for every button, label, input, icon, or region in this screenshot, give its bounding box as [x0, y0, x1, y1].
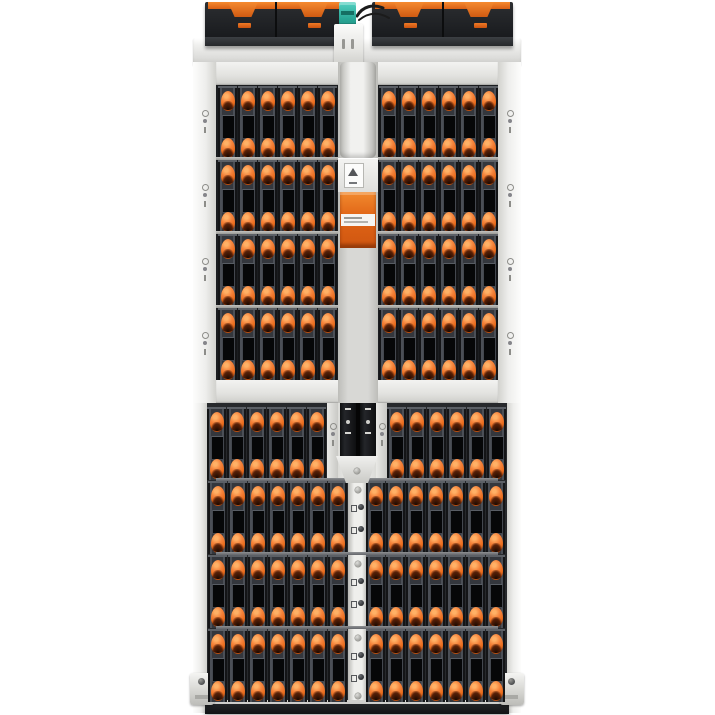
drive-tray [218, 86, 237, 159]
drive-tray [479, 308, 498, 381]
drive-tray [247, 407, 266, 480]
drive-window [282, 189, 295, 213]
drive-window [470, 584, 483, 608]
drive-latch-icon [429, 486, 443, 506]
drive-latch-icon [442, 165, 456, 185]
drive-window [292, 658, 305, 682]
drive-window [430, 658, 443, 682]
drive-window [483, 115, 496, 139]
drive-tray [287, 407, 306, 480]
drive-latch-icon [261, 165, 275, 185]
drive-latch-icon [231, 607, 245, 627]
drive-latch-icon [261, 239, 275, 259]
drive-window [403, 115, 416, 139]
drive-tray [328, 555, 347, 628]
drive-latch-icon [390, 459, 404, 479]
drive-latch-icon [301, 286, 315, 306]
drive-latch-icon [221, 360, 235, 380]
drive-latch-icon [449, 560, 463, 580]
drive-latch-icon [251, 634, 265, 654]
drive-window [262, 337, 275, 361]
drive-latch-icon [301, 360, 315, 380]
drive-window [312, 584, 325, 608]
drive-latch-icon [211, 533, 225, 553]
bracket-slot [351, 39, 354, 49]
drive-tray [386, 555, 405, 628]
module-label [341, 214, 375, 226]
drive-latch-icon [301, 239, 315, 259]
drive-tray [278, 86, 297, 159]
drive-tray [227, 407, 246, 480]
drive-row-indicator-icon [328, 421, 337, 447]
fan-handle [404, 23, 417, 28]
drive-window [431, 436, 444, 460]
center-mini-rail [327, 403, 338, 480]
drive-window [463, 115, 476, 139]
fan-latch-notch-icon [394, 2, 424, 17]
drive-window [490, 510, 503, 534]
indicator-box [351, 653, 357, 660]
drive-tray [248, 629, 267, 702]
drive-window [332, 584, 345, 608]
indicator-knob [358, 504, 364, 510]
drive-latch-icon [469, 634, 483, 654]
drive-window [391, 436, 404, 460]
drive-latch-icon [321, 212, 335, 232]
drive-latch-icon [221, 313, 235, 333]
drive-row-indicator-icon [505, 182, 514, 208]
drive-latch-icon [291, 634, 305, 654]
drive-window [463, 263, 476, 287]
drive-window [471, 436, 484, 460]
indicator-dot [203, 119, 207, 123]
drive-latch-icon [301, 165, 315, 185]
drive-latch-icon [409, 560, 423, 580]
drive-window [463, 337, 476, 361]
drive-tray [486, 555, 505, 628]
drive-window [390, 510, 403, 534]
storage-enclosure [193, 2, 521, 713]
drive-latch-icon [449, 533, 463, 553]
drive-latch-icon [402, 212, 416, 232]
drive-latch-icon [482, 360, 496, 380]
indicator-box [351, 675, 357, 682]
drive-row [208, 629, 348, 700]
drive-tray [318, 86, 337, 159]
drive-window [383, 337, 396, 361]
drive-latch-icon [331, 560, 345, 580]
drive-tray [386, 629, 405, 702]
drive-latch-icon [251, 681, 265, 701]
drive-window [242, 263, 255, 287]
drive-latch-icon [382, 91, 396, 111]
fan-latch-notch-icon [228, 2, 258, 17]
drive-latch-icon [231, 533, 245, 553]
drive-tray [467, 407, 486, 480]
center-label-module [338, 158, 378, 192]
screw-head-icon [355, 693, 361, 699]
drive-tray [366, 629, 385, 702]
drive-latch-icon [310, 412, 324, 432]
center-bracket [334, 24, 363, 66]
drive-window [423, 337, 436, 361]
drive-window [222, 337, 235, 361]
drive-tray [479, 86, 498, 159]
drive-latch-icon [482, 138, 496, 158]
indicator-dot [508, 119, 512, 123]
drive-tray [228, 629, 247, 702]
drive-latch-icon [271, 607, 285, 627]
drive-latch-icon [250, 459, 264, 479]
drive-latch-icon [402, 239, 416, 259]
drive-latch-icon [382, 165, 396, 185]
indicator-bar [204, 201, 206, 207]
drive-latch-icon [241, 313, 255, 333]
drive-window [403, 263, 416, 287]
drive-tray [288, 555, 307, 628]
indicator-ring [330, 423, 337, 430]
drive-latch-icon [442, 313, 456, 333]
drive-latch-icon [230, 412, 244, 432]
drive-window [212, 584, 225, 608]
drive-latch-icon [489, 486, 503, 506]
drive-latch-icon [271, 560, 285, 580]
drive-latch-icon [389, 486, 403, 506]
port-indicator-icon [351, 503, 365, 513]
indicator-dot [331, 432, 335, 436]
drive-window [411, 436, 424, 460]
drive-latch-icon [382, 286, 396, 306]
fan-module-base [372, 37, 513, 46]
drive-window [403, 189, 416, 213]
drive-latch-icon [241, 138, 255, 158]
drive-latch-icon [462, 91, 476, 111]
drive-tray [258, 308, 277, 381]
drive-window [302, 115, 315, 139]
drive-latch-icon [301, 212, 315, 232]
indicator-ring [202, 332, 209, 339]
drive-latch-icon [429, 634, 443, 654]
drive-tray [208, 481, 227, 554]
drive-latch-icon [291, 681, 305, 701]
drive-tray [308, 629, 327, 702]
drive-latch-icon [470, 412, 484, 432]
drive-window [232, 584, 245, 608]
drive-window [450, 510, 463, 534]
drive-latch-icon [450, 412, 464, 432]
drive-row [379, 234, 499, 305]
drive-latch-icon [489, 681, 503, 701]
drive-tray [379, 234, 398, 307]
drive-latch-icon [462, 138, 476, 158]
drive-latch-icon [369, 560, 383, 580]
drive-latch-icon [422, 360, 436, 380]
fan-latch-notch-icon [464, 2, 494, 17]
drive-tray [298, 234, 317, 307]
drive-tray [238, 234, 257, 307]
drive-tray [248, 555, 267, 628]
drive-window [322, 115, 335, 139]
drive-latch-icon [489, 560, 503, 580]
drive-latch-icon [390, 412, 404, 432]
drive-window [242, 337, 255, 361]
drive-latch-icon [482, 313, 496, 333]
drive-window [251, 436, 264, 460]
drive-window [292, 510, 305, 534]
drive-latch-icon [462, 165, 476, 185]
drive-latch-icon [409, 533, 423, 553]
drive-tray [486, 629, 505, 702]
drive-window [302, 263, 315, 287]
indicator-bar [204, 349, 206, 355]
indicator-bar [509, 127, 511, 133]
drive-latch-icon [331, 681, 345, 701]
screw-head-icon [355, 487, 361, 493]
drive-latch-icon [462, 286, 476, 306]
drive-window [483, 337, 496, 361]
drive-latch-icon [210, 412, 224, 432]
drive-window [252, 658, 265, 682]
indicator-ring [202, 184, 209, 191]
drive-latch-icon [261, 313, 275, 333]
drive-latch-icon [402, 360, 416, 380]
drive-window [312, 510, 325, 534]
drive-latch-icon [410, 459, 424, 479]
drive-latch-icon [301, 91, 315, 111]
indicator-bar [204, 127, 206, 133]
drive-row [207, 407, 327, 478]
drive-tray [466, 629, 485, 702]
drive-latch-icon [331, 486, 345, 506]
drive-latch-icon [489, 634, 503, 654]
screw-head-icon [355, 561, 361, 567]
drive-tray [298, 308, 317, 381]
fan-module-group-left [205, 2, 347, 46]
drive-latch-icon [270, 459, 284, 479]
drive-latch-icon [281, 360, 295, 380]
indicator-ring [507, 110, 514, 117]
drive-latch-icon [271, 634, 285, 654]
drive-window [272, 510, 285, 534]
right-edge-rail [507, 403, 521, 713]
drive-window [272, 658, 285, 682]
drive-tray [439, 234, 458, 307]
indicator-dot [203, 267, 207, 271]
arm-indicator-icons [344, 406, 352, 442]
drive-latch-icon [469, 533, 483, 553]
drive-latch-icon [422, 239, 436, 259]
drive-latch-icon [251, 607, 265, 627]
drive-latch-icon [321, 138, 335, 158]
drive-window [272, 584, 285, 608]
drive-latch-icon [331, 634, 345, 654]
drive-latch-icon [482, 212, 496, 232]
drive-latch-icon [231, 681, 245, 701]
drive-latch-icon [221, 91, 235, 111]
drive-latch-icon [469, 681, 483, 701]
drive-tray [308, 481, 327, 554]
drive-tray [399, 86, 418, 159]
drive-tray [387, 407, 406, 480]
indicator-ring [379, 423, 386, 430]
drive-latch-icon [231, 560, 245, 580]
drive-tray [446, 555, 465, 628]
drive-tray [379, 160, 398, 233]
orange-interposer-module [340, 192, 376, 248]
drive-window [302, 189, 315, 213]
drive-row [208, 555, 348, 626]
drive-latch-icon [221, 286, 235, 306]
drive-tray [399, 160, 418, 233]
drive-tray [459, 160, 478, 233]
drive-latch-icon [409, 634, 423, 654]
drive-window [292, 584, 305, 608]
indicator-ring [507, 184, 514, 191]
drive-latch-icon [430, 412, 444, 432]
drive-tray [479, 160, 498, 233]
drive-latch-icon [281, 91, 295, 111]
drive-window [430, 584, 443, 608]
drive-window [252, 584, 265, 608]
fan-handle [308, 23, 321, 28]
drive-tray [366, 481, 385, 554]
drive-tray [328, 481, 347, 554]
drive-latch-icon [211, 607, 225, 627]
indicator-bar [509, 201, 511, 207]
drive-latch-icon [261, 212, 275, 232]
drive-tray [308, 555, 327, 628]
drive-row-indicator-icon [505, 108, 514, 134]
drive-latch-icon [490, 459, 504, 479]
drive-latch-icon [442, 212, 456, 232]
indicator-bar [204, 275, 206, 281]
indicator-box [351, 505, 357, 512]
drive-window [470, 658, 483, 682]
drive-window [222, 115, 235, 139]
drive-tray [278, 308, 297, 381]
indicator-bar [509, 275, 511, 281]
drive-latch-icon [489, 607, 503, 627]
drive-window [403, 337, 416, 361]
drive-latch-icon [369, 681, 383, 701]
drive-window [423, 115, 436, 139]
drive-window [370, 584, 383, 608]
port-indicator-icon [351, 673, 365, 683]
drive-tray [366, 555, 385, 628]
drive-tray [386, 481, 405, 554]
drive-latch-icon [382, 313, 396, 333]
drive-latch-icon [321, 313, 335, 333]
drive-latch-icon [221, 138, 235, 158]
drive-window [443, 263, 456, 287]
center-rail [340, 62, 376, 158]
drive-window [232, 658, 245, 682]
drive-latch-icon [422, 165, 436, 185]
drive-tray [298, 160, 317, 233]
drive-row-indicator-icon [505, 330, 514, 356]
drive-window [390, 584, 403, 608]
drive-tray [228, 481, 247, 554]
drive-latch-icon [261, 360, 275, 380]
drive-row [218, 234, 338, 305]
drive-tray [318, 160, 337, 233]
drive-latch-icon [251, 486, 265, 506]
drive-window [322, 337, 335, 361]
drive-latch-icon [291, 560, 305, 580]
drive-tray [218, 308, 237, 381]
drive-latch-icon [469, 486, 483, 506]
drive-latch-icon [449, 681, 463, 701]
drive-window [451, 436, 464, 460]
drive-latch-icon [462, 313, 476, 333]
drive-tray [487, 407, 506, 480]
caution-triangle-icon [344, 163, 364, 188]
drive-tray [426, 629, 445, 702]
drive-window [370, 658, 383, 682]
drive-latch-icon [422, 138, 436, 158]
drive-latch-icon [382, 360, 396, 380]
drive-window [383, 115, 396, 139]
indicator-dot [508, 193, 512, 197]
drive-tray [426, 555, 445, 628]
indicator-knob [358, 674, 364, 680]
drive-row [366, 481, 506, 552]
drive-latch-icon [462, 360, 476, 380]
center-mini-rail [376, 403, 387, 480]
drive-latch-icon [449, 607, 463, 627]
drive-window [271, 436, 284, 460]
drive-window [443, 337, 456, 361]
drive-latch-icon [409, 607, 423, 627]
drive-latch-icon [281, 165, 295, 185]
drive-latch-icon [281, 286, 295, 306]
drive-window [470, 510, 483, 534]
drive-tray [459, 308, 478, 381]
drive-window [282, 115, 295, 139]
drive-latch-icon [311, 681, 325, 701]
drive-latch-icon [311, 634, 325, 654]
drive-latch-icon [382, 138, 396, 158]
drive-latch-icon [301, 313, 315, 333]
drive-latch-icon [331, 533, 345, 553]
drive-window [312, 658, 325, 682]
drive-latch-icon [221, 212, 235, 232]
drive-window [383, 189, 396, 213]
drive-latch-icon [231, 634, 245, 654]
drive-window [410, 510, 423, 534]
drive-latch-icon [251, 560, 265, 580]
drive-latch-icon [291, 533, 305, 553]
drive-window [443, 115, 456, 139]
indicator-bar [332, 440, 334, 446]
product-photo-canvas [0, 0, 715, 715]
indicator-dot [203, 341, 207, 345]
drive-latch-icon [211, 486, 225, 506]
drive-tray [328, 629, 347, 702]
drive-latch-icon [429, 560, 443, 580]
drive-tray [258, 160, 277, 233]
drive-tray [379, 86, 398, 159]
drive-tray [439, 308, 458, 381]
drive-window [222, 189, 235, 213]
drive-latch-icon [241, 165, 255, 185]
bracket-slot [342, 39, 345, 49]
fan-module-seam [442, 2, 444, 38]
drive-latch-icon [221, 239, 235, 259]
left-edge-rail [193, 403, 207, 713]
indicator-ring [507, 258, 514, 265]
drive-tray [258, 86, 277, 159]
